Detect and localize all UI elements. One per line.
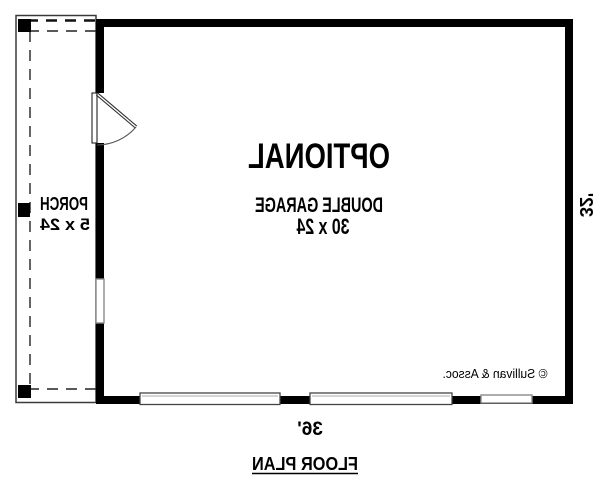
side-wall-window [96, 279, 104, 323]
plan-title: FLOOR PLAN [252, 454, 358, 474]
room-label-optional: OPTIONAL [248, 137, 390, 176]
porch-post-middle [18, 203, 30, 217]
porch-label: PORCH [40, 194, 88, 214]
porch-post-bottom [18, 385, 31, 398]
entry-door-slab [92, 93, 97, 143]
copyright-text: © Sullivan & Assoc. [443, 366, 548, 381]
dimension-side-height: 32' [576, 193, 596, 217]
garage-door-right [140, 393, 280, 405]
room-label-size: 30 x 24 [296, 214, 350, 239]
floor-plan-drawing: OPTIONAL DOUBLE GARAGE 30 x 24 PORCH 5 x… [0, 0, 600, 481]
porch-size-label: 5 x 24 [39, 215, 90, 234]
garage-door-left [310, 393, 452, 405]
porch-post-top [18, 19, 31, 32]
dimension-bottom-width: 36' [297, 419, 323, 440]
mirrored-plan-group: OPTIONAL DOUBLE GARAGE 30 x 24 PORCH 5 x… [16, 16, 596, 475]
floor-plan-canvas: OPTIONAL DOUBLE GARAGE 30 x 24 PORCH 5 x… [0, 0, 600, 481]
bottom-wall-window [481, 395, 532, 403]
